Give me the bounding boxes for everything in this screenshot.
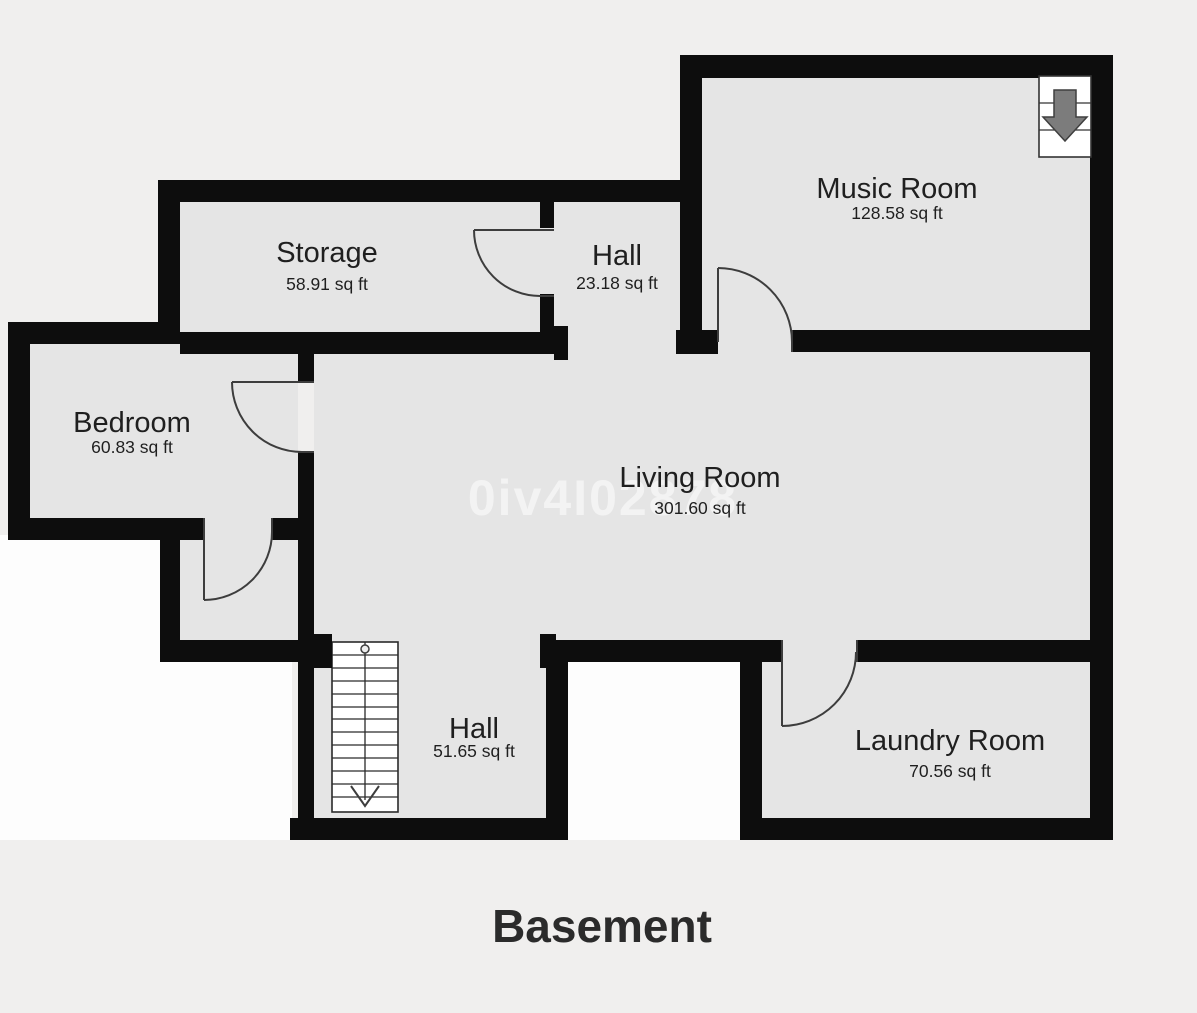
room-area-storage: 58.91 sq ft	[286, 274, 368, 294]
room-label-storage: Storage	[276, 237, 378, 269]
wall	[8, 322, 30, 540]
wall	[8, 322, 180, 344]
floor-plan-canvas: 0iv4I02878 Storage 58.91 sq ft Hall 23.1…	[0, 0, 1197, 1013]
room-label-upper-hall: Hall	[592, 240, 642, 272]
outside-patch-center	[566, 640, 742, 840]
room-label-living-room: Living Room	[619, 462, 780, 494]
room-area-laundry-room: 70.56 sq ft	[909, 761, 991, 781]
wall	[740, 640, 762, 840]
wall	[158, 180, 180, 344]
wall	[680, 55, 1113, 78]
staircase-start-marker	[361, 645, 369, 653]
room-area-upper-hall: 23.18 sq ft	[576, 273, 658, 293]
room-label-music-room: Music Room	[816, 173, 977, 205]
room-label-laundry-room: Laundry Room	[855, 725, 1045, 757]
room-area-lower-hall: 51.65 sq ft	[433, 741, 515, 761]
stairs-down-icon	[1039, 76, 1091, 157]
wall	[792, 330, 1090, 352]
wall	[290, 818, 568, 840]
wall	[740, 818, 1113, 840]
room-area-music-room: 128.58 sq ft	[851, 203, 943, 223]
wall-end-cap	[314, 634, 332, 668]
staircase	[332, 642, 398, 812]
wall	[540, 202, 554, 228]
page-title: Basement	[492, 900, 712, 952]
wall	[1090, 55, 1113, 840]
wall	[540, 294, 554, 354]
wall	[158, 180, 702, 202]
wall	[857, 640, 1090, 662]
wall	[676, 330, 718, 354]
wall	[546, 640, 568, 840]
wall	[8, 518, 204, 540]
wall	[680, 55, 702, 352]
wall	[180, 332, 568, 354]
floor-plan-page: 0iv4I02878 Storage 58.91 sq ft Hall 23.1…	[0, 0, 1197, 1013]
room-area-living-room: 301.60 sq ft	[654, 498, 746, 518]
wall-end-cap	[540, 634, 556, 668]
wall	[298, 452, 314, 840]
room-label-bedroom: Bedroom	[73, 407, 191, 439]
room-area-bedroom: 60.83 sq ft	[91, 437, 173, 457]
wall-end-cap	[554, 326, 568, 360]
